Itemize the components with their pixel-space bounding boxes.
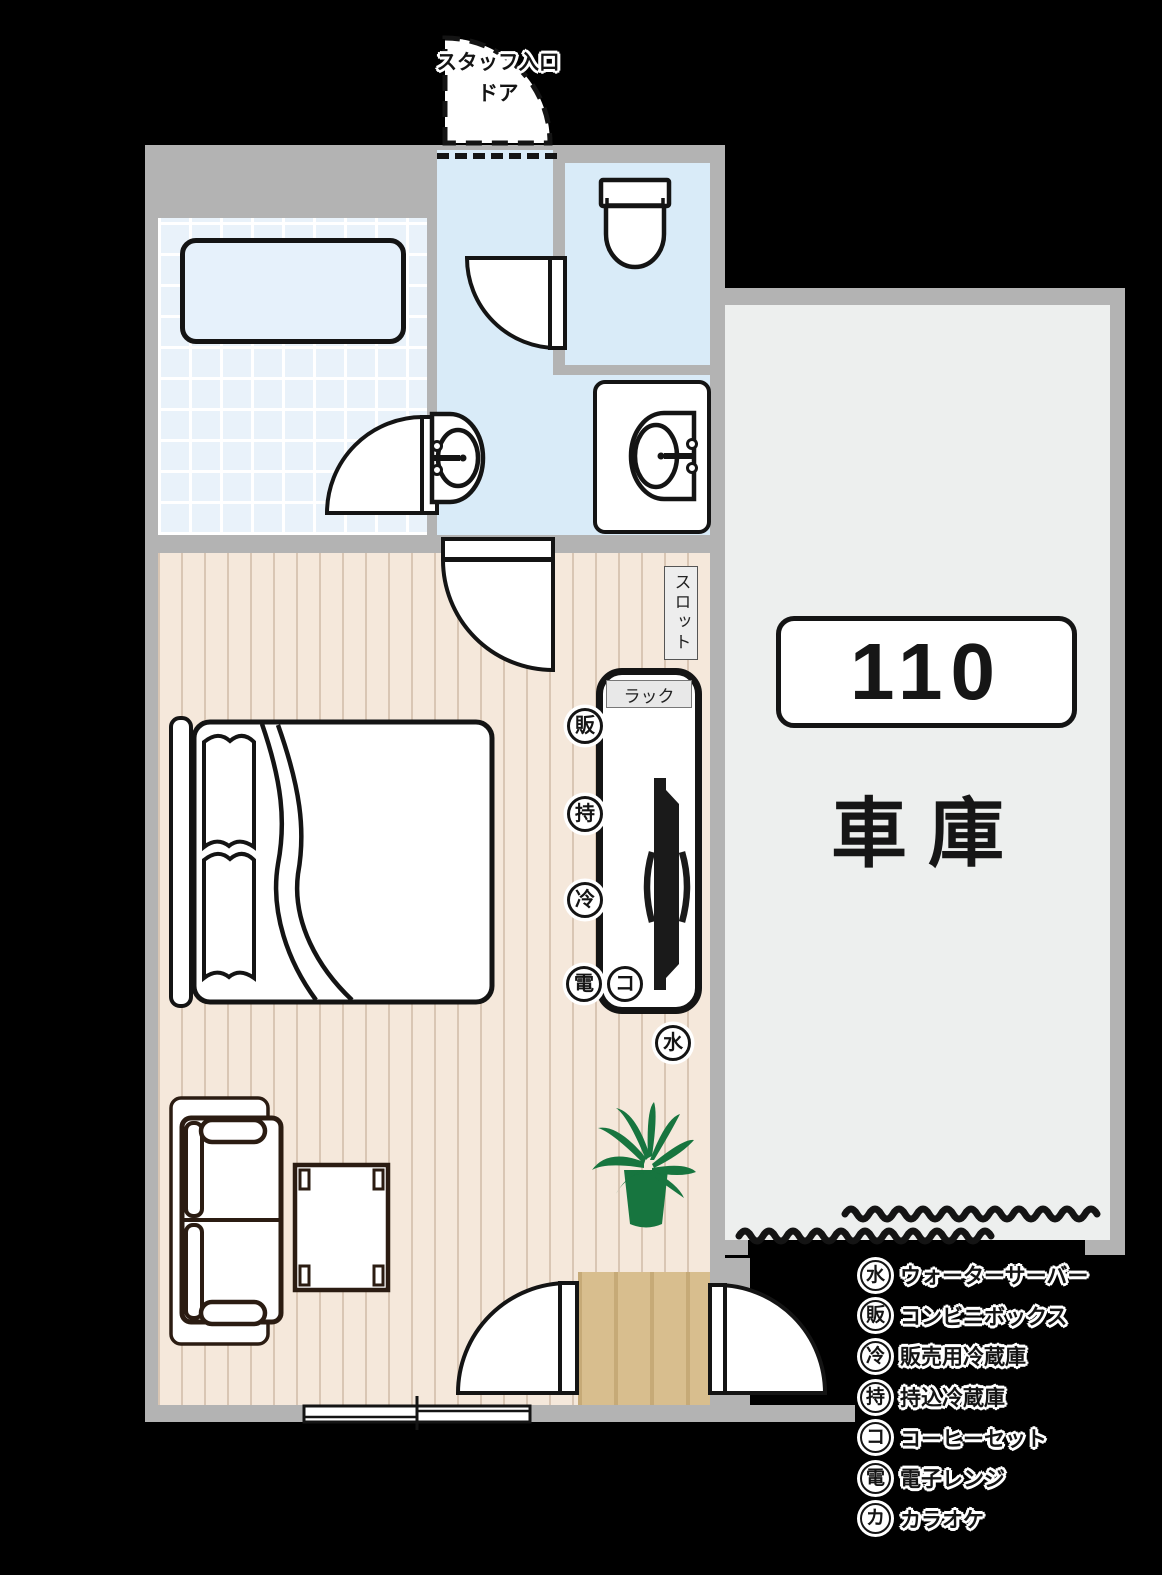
legend: 水 ウォーターサーバー 販 コンビニボックス 冷 販売用冷蔵庫 持 持込冷蔵庫 … [860,1255,1160,1539]
legend-label-karaoke: カラオケ [900,1504,984,1534]
marker-water-server: 水 [655,1025,691,1061]
rack-label-box: ラック [606,680,692,708]
legend-row-convenience-box: 販 コンビニボックス [860,1296,1160,1337]
garage-label: 車 庫 [725,772,1110,882]
toilet-door [458,248,570,356]
legend-symbol-water: 水 [860,1260,891,1291]
room-number-badge: 110 [776,616,1077,728]
entry-door-outer [702,1275,842,1405]
bed-icon [166,712,498,1010]
legend-label-convenience: コンビニボックス [900,1301,1067,1331]
toilet-icon [595,172,677,274]
entry-door-inner [448,1273,583,1408]
legend-label-sales-fridge: 販売用冷蔵庫 [900,1341,1026,1371]
plant-icon [588,1098,698,1230]
slot-box: スロット [664,566,698,660]
legend-symbol-sales-fridge: 冷 [860,1341,891,1372]
legend-row-guest-fridge: 持 持込冷蔵庫 [860,1377,1160,1418]
room-number: 110 [850,626,1003,718]
legend-label-guest-fridge: 持込冷蔵庫 [900,1382,1005,1412]
sofa-icon [166,1092,292,1350]
marker-guest-fridge: 持 [567,796,603,832]
legend-label-coffee: コーヒーセット [900,1423,1047,1453]
legend-row-sales-fridge: 冷 販売用冷蔵庫 [860,1336,1160,1377]
slot-label: スロット [669,573,694,653]
legend-symbol-convenience: 販 [860,1300,891,1331]
legend-symbol-coffee: コ [860,1422,891,1453]
staff-door-threshold [437,153,557,159]
legend-row-karaoke: カ カラオケ [860,1499,1160,1540]
marker-coffee-set: コ [607,966,643,1002]
legend-symbol-microwave: 電 [860,1463,891,1494]
marker-sales-fridge: 冷 [567,882,603,918]
garage-break-lines [725,1198,1145,1258]
tv-icon [638,768,696,1000]
bottom-wall-extension [725,1405,855,1422]
table-icon [290,1160,395,1296]
rack-label: ラック [624,682,675,707]
vanity-sink-icon [622,405,712,510]
legend-symbol-karaoke: カ [860,1503,891,1534]
staff-entrance-label-line1: スタッフ入口 [405,48,591,79]
legend-row-coffee-set: コ コーヒーセット [860,1417,1160,1458]
washroom-sink-icon [418,402,493,510]
floor-plan: スタッフ入口 ドア スロット [0,0,1162,1575]
legend-row-microwave: 電 電子レンジ [860,1458,1160,1499]
bathtub-icon [180,238,406,344]
washroom-door [435,530,565,678]
marker-convenience-box: 販 [567,708,603,744]
staff-entrance-label: スタッフ入口 ドア [405,48,591,110]
staff-entrance-label-line2: ドア [405,79,591,110]
legend-row-water-server: 水 ウォーターサーバー [860,1255,1160,1296]
entry-floor [578,1272,710,1405]
legend-label-water: ウォーターサーバー [900,1260,1088,1290]
legend-symbol-guest-fridge: 持 [860,1382,891,1413]
legend-label-microwave: 電子レンジ [900,1463,1005,1493]
marker-microwave: 電 [566,966,602,1002]
